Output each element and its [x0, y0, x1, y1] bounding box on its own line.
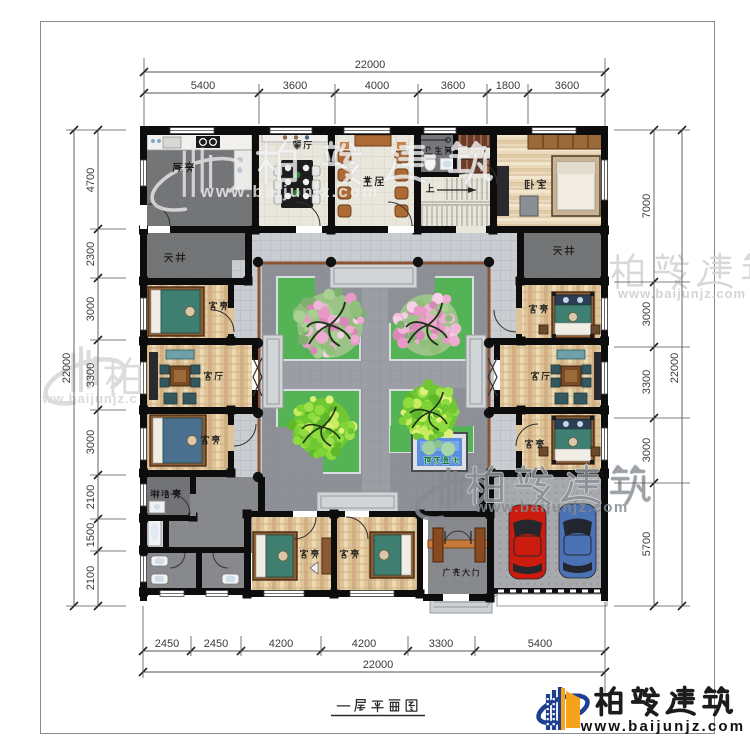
svg-text:1800: 1800 — [496, 80, 520, 92]
svg-text:2300: 2300 — [85, 242, 97, 266]
svg-text:22000: 22000 — [363, 659, 394, 671]
svg-text:2100: 2100 — [85, 566, 97, 590]
svg-text:1500: 1500 — [85, 523, 97, 547]
svg-text:3600: 3600 — [555, 80, 579, 92]
svg-text:3300: 3300 — [429, 638, 453, 650]
svg-text:www.baijunjz.com: www.baijunjz.com — [474, 499, 628, 516]
svg-text:3300: 3300 — [641, 370, 653, 394]
svg-text:2100: 2100 — [85, 485, 97, 509]
svg-text:3000: 3000 — [641, 302, 653, 326]
svg-text:www.baijunjz.com: www.baijunjz.com — [580, 718, 746, 735]
svg-text:3000: 3000 — [641, 438, 653, 462]
svg-text:ww.baijunjz.c: ww.baijunjz.c — [41, 391, 138, 406]
svg-text:4700: 4700 — [85, 168, 97, 192]
svg-text:3000: 3000 — [85, 430, 97, 454]
svg-text:3600: 3600 — [441, 80, 465, 92]
svg-text:4200: 4200 — [352, 638, 376, 650]
svg-text:2450: 2450 — [155, 638, 179, 650]
svg-text:22000: 22000 — [355, 59, 386, 71]
svg-text:3600: 3600 — [283, 80, 307, 92]
svg-text:7000: 7000 — [641, 194, 653, 218]
svg-text:5700: 5700 — [641, 532, 653, 556]
svg-text:5400: 5400 — [528, 638, 552, 650]
svg-text:3000: 3000 — [85, 297, 97, 321]
svg-text:2450: 2450 — [204, 638, 228, 650]
svg-text:22000: 22000 — [61, 353, 73, 384]
svg-text:3300: 3300 — [85, 363, 97, 387]
svg-text:22000: 22000 — [669, 353, 681, 384]
svg-text:5400: 5400 — [191, 80, 215, 92]
svg-text:4000: 4000 — [365, 80, 389, 92]
svg-text:www.baijunjz.com: www.baijunjz.com — [617, 286, 746, 301]
svg-text:4200: 4200 — [269, 638, 293, 650]
svg-text:www.baijunjz.com: www.baijunjz.com — [200, 182, 380, 201]
